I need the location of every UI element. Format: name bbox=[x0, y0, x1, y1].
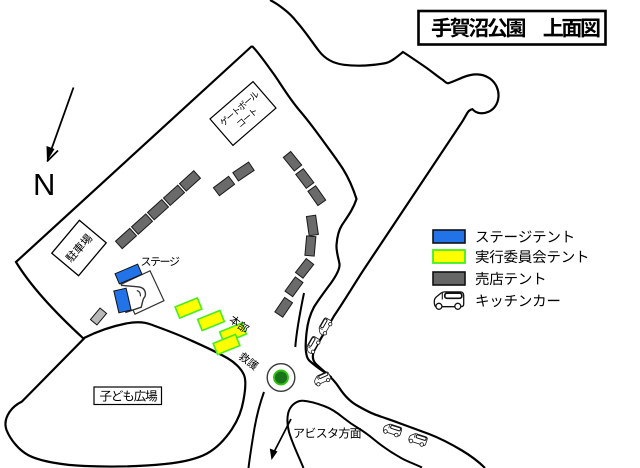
svg-text:N: N bbox=[33, 167, 55, 202]
